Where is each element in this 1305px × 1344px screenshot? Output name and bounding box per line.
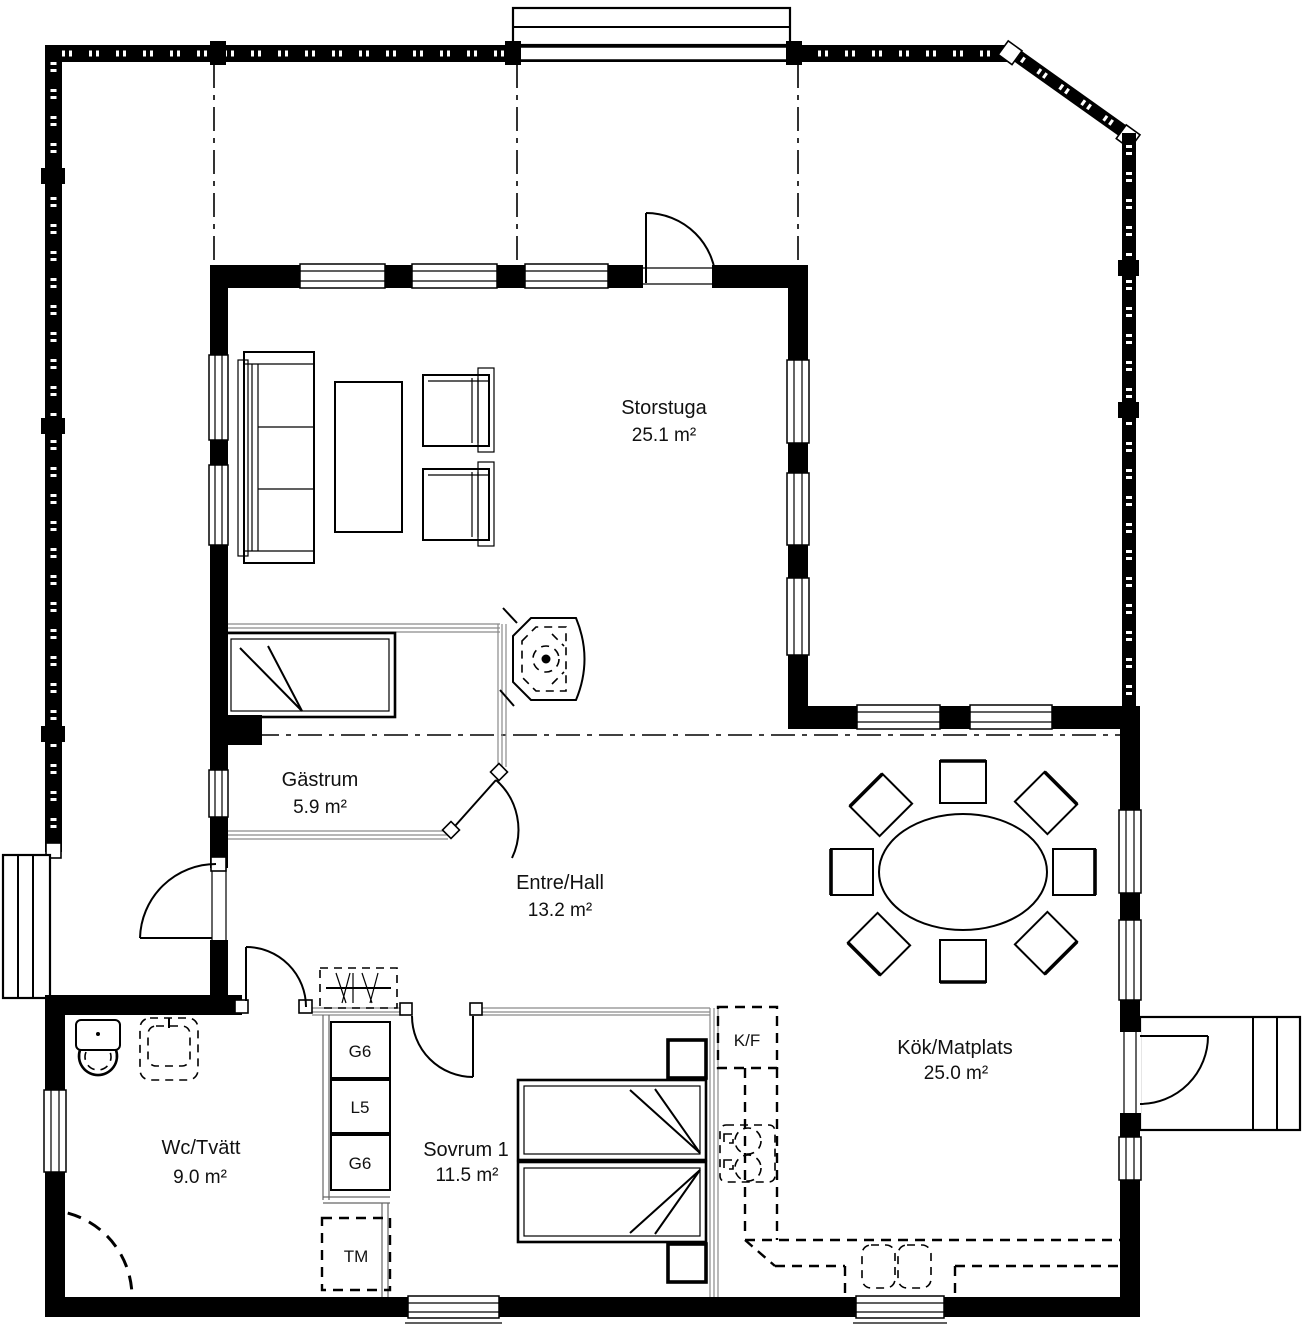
doors: [140, 213, 1208, 1113]
room-label-storstuga: Storstuga 25.1 m²: [621, 397, 707, 446]
armchair: [423, 462, 494, 546]
room-label-sovrum1: Sovrum 1 11.5 m²: [423, 1139, 509, 1186]
sofa: [238, 352, 314, 563]
window: [405, 1296, 502, 1323]
sovrum-door: [400, 1003, 482, 1077]
gastrum-glass-wall-bottom: [228, 831, 448, 839]
exterior-steps-right: [1140, 1017, 1300, 1130]
hall-partition: [312, 1008, 710, 1015]
wc-tvatt-name: Wc/Tvätt: [162, 1137, 241, 1159]
dining-set: [831, 761, 1095, 982]
coffee-table: [335, 382, 402, 532]
dining-chair: [848, 913, 910, 975]
dining-chair: [940, 940, 986, 982]
window: [44, 1090, 66, 1172]
nightstand: [668, 1040, 706, 1078]
nightstand: [668, 1244, 706, 1282]
fridge-freezer-label: K/F: [734, 1031, 760, 1050]
cabinet-g6-top-label: G6: [349, 1042, 372, 1061]
window: [1119, 810, 1141, 893]
kok-matplats-area: 25.0 m²: [924, 1063, 988, 1084]
windows: [44, 264, 1141, 1323]
coat-rack: [320, 968, 397, 1008]
sovrum1-furniture: [518, 1040, 706, 1282]
armchair: [423, 368, 494, 452]
room-label-gastrum: Gästrum 5.9 m²: [282, 769, 359, 818]
wc-tvatt-area: 9.0 m²: [173, 1167, 227, 1188]
bed: [518, 1080, 706, 1160]
hall-storage: G6 L5 G6 TM: [320, 968, 397, 1290]
entrance-door: [140, 857, 229, 940]
sovrum1-name: Sovrum 1: [423, 1139, 509, 1161]
cabinet-g6-top: G6: [331, 1022, 390, 1078]
washbasin: [140, 1018, 198, 1080]
window: [787, 360, 809, 443]
single-bed: [225, 633, 395, 717]
storstuga-deck-door: [643, 213, 716, 288]
deck-terrace: [3, 8, 1300, 1130]
dining-table: [879, 814, 1047, 930]
deck-railing-left: [41, 45, 65, 858]
window: [209, 465, 228, 545]
dining-chair: [850, 774, 912, 836]
cabinet-l5-label: L5: [351, 1098, 370, 1117]
entre-hall-area: 13.2 m²: [528, 900, 592, 921]
kitchen-counter-south: [745, 1240, 1120, 1295]
bed: [518, 1162, 706, 1242]
deck-railing-diagonal: [998, 41, 1140, 149]
fridge-freezer: K/F: [718, 1007, 777, 1068]
sovrum1-area: 11.5 m²: [435, 1165, 498, 1186]
toilet: [76, 1020, 120, 1075]
gastrum-glass-wall-top: [228, 624, 500, 632]
window: [970, 705, 1052, 729]
dining-chair: [1015, 912, 1077, 974]
deck-railing-right: [1118, 133, 1139, 710]
wc-door: [235, 947, 312, 1013]
washing-machine-label: TM: [344, 1247, 369, 1266]
exterior-steps-top: [513, 8, 790, 45]
window: [853, 1296, 947, 1323]
window: [300, 264, 385, 288]
cooktop: [862, 1245, 931, 1288]
room-labels: Storstuga 25.1 m² Gästrum 5.9 m² Entre/H…: [162, 397, 1013, 1188]
exterior-steps-left: [3, 855, 50, 998]
window: [1119, 920, 1141, 1000]
room-label-entre-hall: Entre/Hall 13.2 m²: [516, 872, 604, 921]
dining-chair: [1015, 772, 1077, 834]
kok-matplats-name: Kök/Matplats: [897, 1037, 1013, 1059]
gastrum-area: 5.9 m²: [293, 797, 347, 818]
dining-chair: [1053, 849, 1095, 895]
window: [1119, 1137, 1141, 1180]
window: [525, 264, 608, 288]
gastrum-furniture: [225, 633, 395, 717]
cabinet-g6-bottom-label: G6: [349, 1154, 372, 1173]
washing-machine: TM: [322, 1218, 390, 1290]
room-label-kok-matplats: Kök/Matplats 25.0 m²: [897, 1037, 1013, 1084]
window: [857, 705, 940, 729]
gastrum-name: Gästrum: [282, 769, 359, 791]
entre-hall-name: Entre/Hall: [516, 872, 604, 894]
window: [209, 770, 228, 817]
wood-stove: [513, 618, 585, 700]
kitchen-sink: [720, 1125, 775, 1182]
window: [412, 264, 497, 288]
gastrum-door: [443, 764, 519, 858]
window: [787, 578, 809, 655]
storstuga-area: 25.1 m²: [632, 425, 696, 446]
storstuga-furniture: [238, 352, 585, 700]
room-label-wc-tvatt: Wc/Tvätt 9.0 m²: [162, 1137, 241, 1188]
window: [209, 355, 228, 440]
window: [787, 473, 809, 545]
floorplan-drawing: G6 L5 G6 TM: [0, 0, 1305, 1344]
storstuga-name: Storstuga: [621, 397, 707, 419]
dining-chair: [940, 761, 986, 803]
cabinet-g6-bottom: G6: [331, 1135, 390, 1190]
dining-chair: [831, 849, 873, 895]
floorplan-page: G6 L5 G6 TM: [0, 0, 1305, 1344]
cabinet-l5: L5: [331, 1080, 390, 1133]
